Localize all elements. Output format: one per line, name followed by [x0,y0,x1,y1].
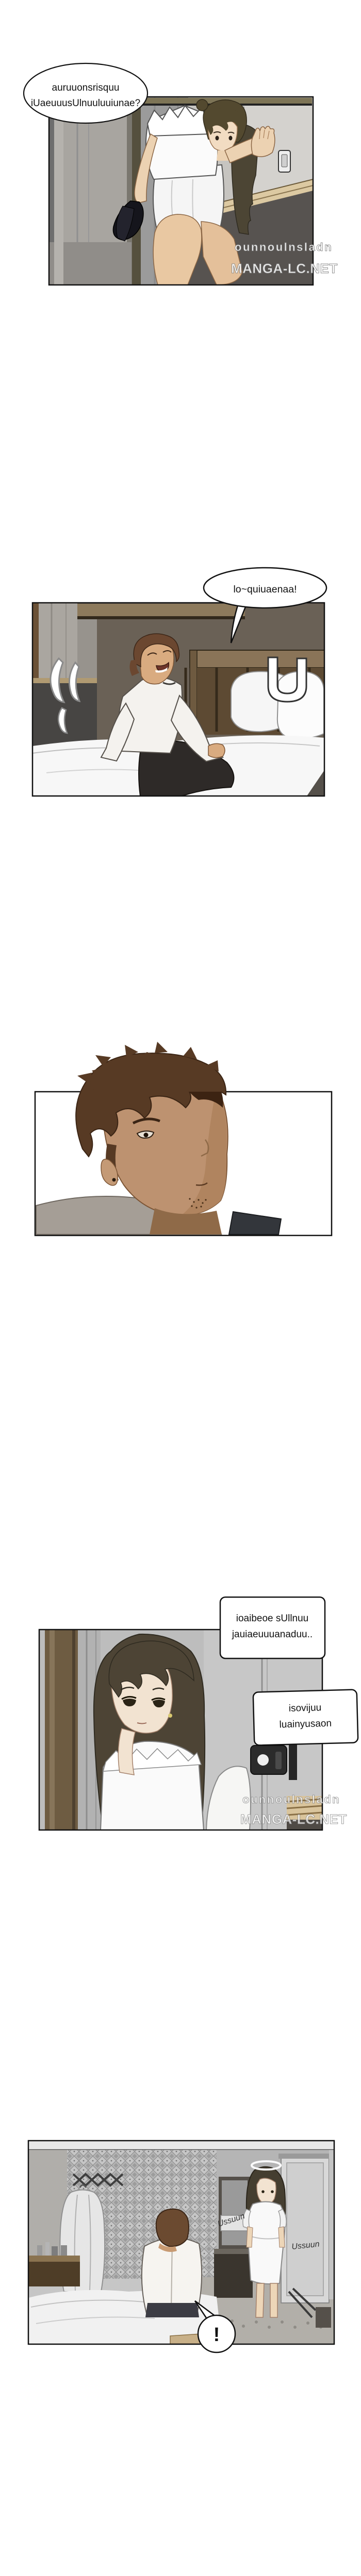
svg-text:ounnoulnsladn: ounnoulnsladn [235,241,333,253]
svg-text:iUaeuuusUlnuuluuiunae?: iUaeuuusUlnuuluuiunae? [31,98,140,109]
svg-text:auruuonsrisquu: auruuonsrisquu [52,82,120,93]
svg-text:ioaibeoe sUllnuu: ioaibeoe sUllnuu [236,1613,309,1624]
svg-text:isovijuu: isovijuu [289,1702,322,1714]
svg-text:!: ! [214,2324,220,2346]
svg-text:MANGA-LC.NET: MANGA-LC.NET [231,261,338,276]
svg-text:ounnoulnsladn: ounnoulnsladn [242,1793,340,1806]
svg-text:lo~quiuaenaa!: lo~quiuaenaa! [233,584,297,595]
svg-text:jauiaeuuuanaduu..: jauiaeuuuanaduu.. [232,1629,313,1640]
svg-text:luainyusaon: luainyusaon [279,1718,332,1731]
svg-text:MANGA-LC.NET: MANGA-LC.NET [240,1811,347,1827]
